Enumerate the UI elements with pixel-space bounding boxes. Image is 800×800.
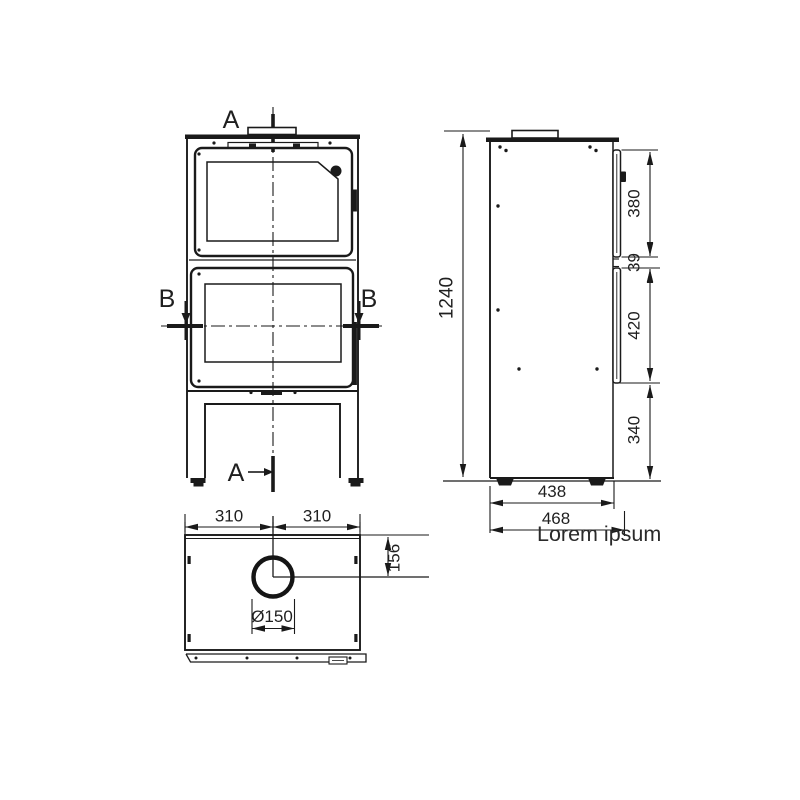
dim-flue-offset-left: 310 <box>215 507 243 526</box>
dim-upper-door-height: 380 <box>625 189 644 217</box>
screw-dot <box>212 141 215 144</box>
slot-mark <box>354 634 357 642</box>
screw-dot <box>293 391 296 394</box>
lower-door-hinge <box>352 322 357 385</box>
screw-dot <box>594 149 597 152</box>
air-control-tick <box>249 144 256 148</box>
right-foot-pad <box>351 483 361 487</box>
screw-dot <box>517 367 520 370</box>
screw-dot <box>197 272 200 275</box>
screw-dot <box>197 379 200 382</box>
screw-dot <box>197 248 200 251</box>
section-b-right-label: B <box>361 285 378 313</box>
lower-door-frame <box>191 268 353 387</box>
screw-dot <box>588 145 591 148</box>
dim-body-depth: 438 <box>538 482 566 501</box>
screw-dot <box>328 141 331 144</box>
right-foot <box>349 478 364 483</box>
screw-dot <box>296 657 299 660</box>
technical-drawing-page: A B B <box>0 0 800 800</box>
dim-base-height: 340 <box>625 416 644 444</box>
screw-dot <box>496 308 499 311</box>
dim-overall-height: 1240 <box>437 277 458 319</box>
screw-dot <box>504 149 507 152</box>
screw-dot <box>498 145 501 148</box>
section-b-left-arrow <box>182 313 191 324</box>
slot-mark <box>188 634 191 642</box>
screw-dot <box>249 391 252 394</box>
air-control-tick <box>293 144 300 148</box>
upper-door-hinge <box>352 190 357 212</box>
screw-dot <box>595 367 598 370</box>
screw-dot <box>349 657 352 660</box>
dim-door-gap: 39 <box>625 253 644 272</box>
side-foot-right <box>588 478 606 486</box>
screw-dot <box>496 204 499 207</box>
flue-collar-side <box>512 131 558 139</box>
caption-text: Lorem ipsum <box>537 522 661 546</box>
stove-dimension-drawing: A B B <box>0 0 800 800</box>
slot-mark <box>188 556 191 564</box>
slot-mark <box>354 556 357 564</box>
knob-side-profile <box>621 172 627 183</box>
dim-lower-door-height: 420 <box>625 311 644 339</box>
front-view: A B B <box>159 106 385 492</box>
dim-flue-offset-rear: 156 <box>385 544 404 572</box>
dim-flue-offset-right: 310 <box>303 507 331 526</box>
screw-dot <box>246 657 249 660</box>
side-foot-left <box>496 478 514 486</box>
screw-dot <box>197 152 200 155</box>
door-knob <box>331 166 342 177</box>
base-handle <box>261 391 282 396</box>
left-foot <box>191 478 206 483</box>
dim-flue-diameter: Ø150 <box>251 607 293 626</box>
section-a-bottom-label: A <box>228 459 245 487</box>
screw-dot <box>195 657 198 660</box>
left-foot-pad <box>194 483 204 487</box>
flue-collar-front <box>248 128 296 135</box>
section-a-top-label: A <box>223 106 240 134</box>
side-view: 1240 380 3 <box>437 131 662 547</box>
top-view: 310 310 156 Ø150 <box>185 507 429 665</box>
section-b-left-label: B <box>159 285 176 313</box>
